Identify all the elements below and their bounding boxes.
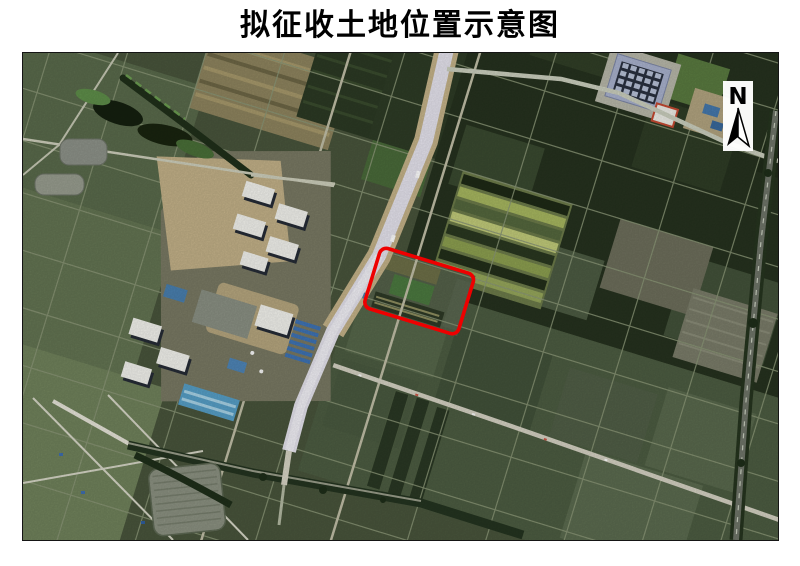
page: 拟征收土地位置示意图	[0, 0, 800, 566]
north-arrow: N	[723, 81, 753, 151]
map-content: N	[23, 53, 778, 540]
north-arrow-label: N	[728, 84, 747, 110]
map-frame: N	[22, 52, 779, 541]
satellite-map-image: N	[23, 53, 778, 540]
page-title: 拟征收土地位置示意图	[0, 6, 800, 46]
map-noise	[23, 53, 778, 540]
